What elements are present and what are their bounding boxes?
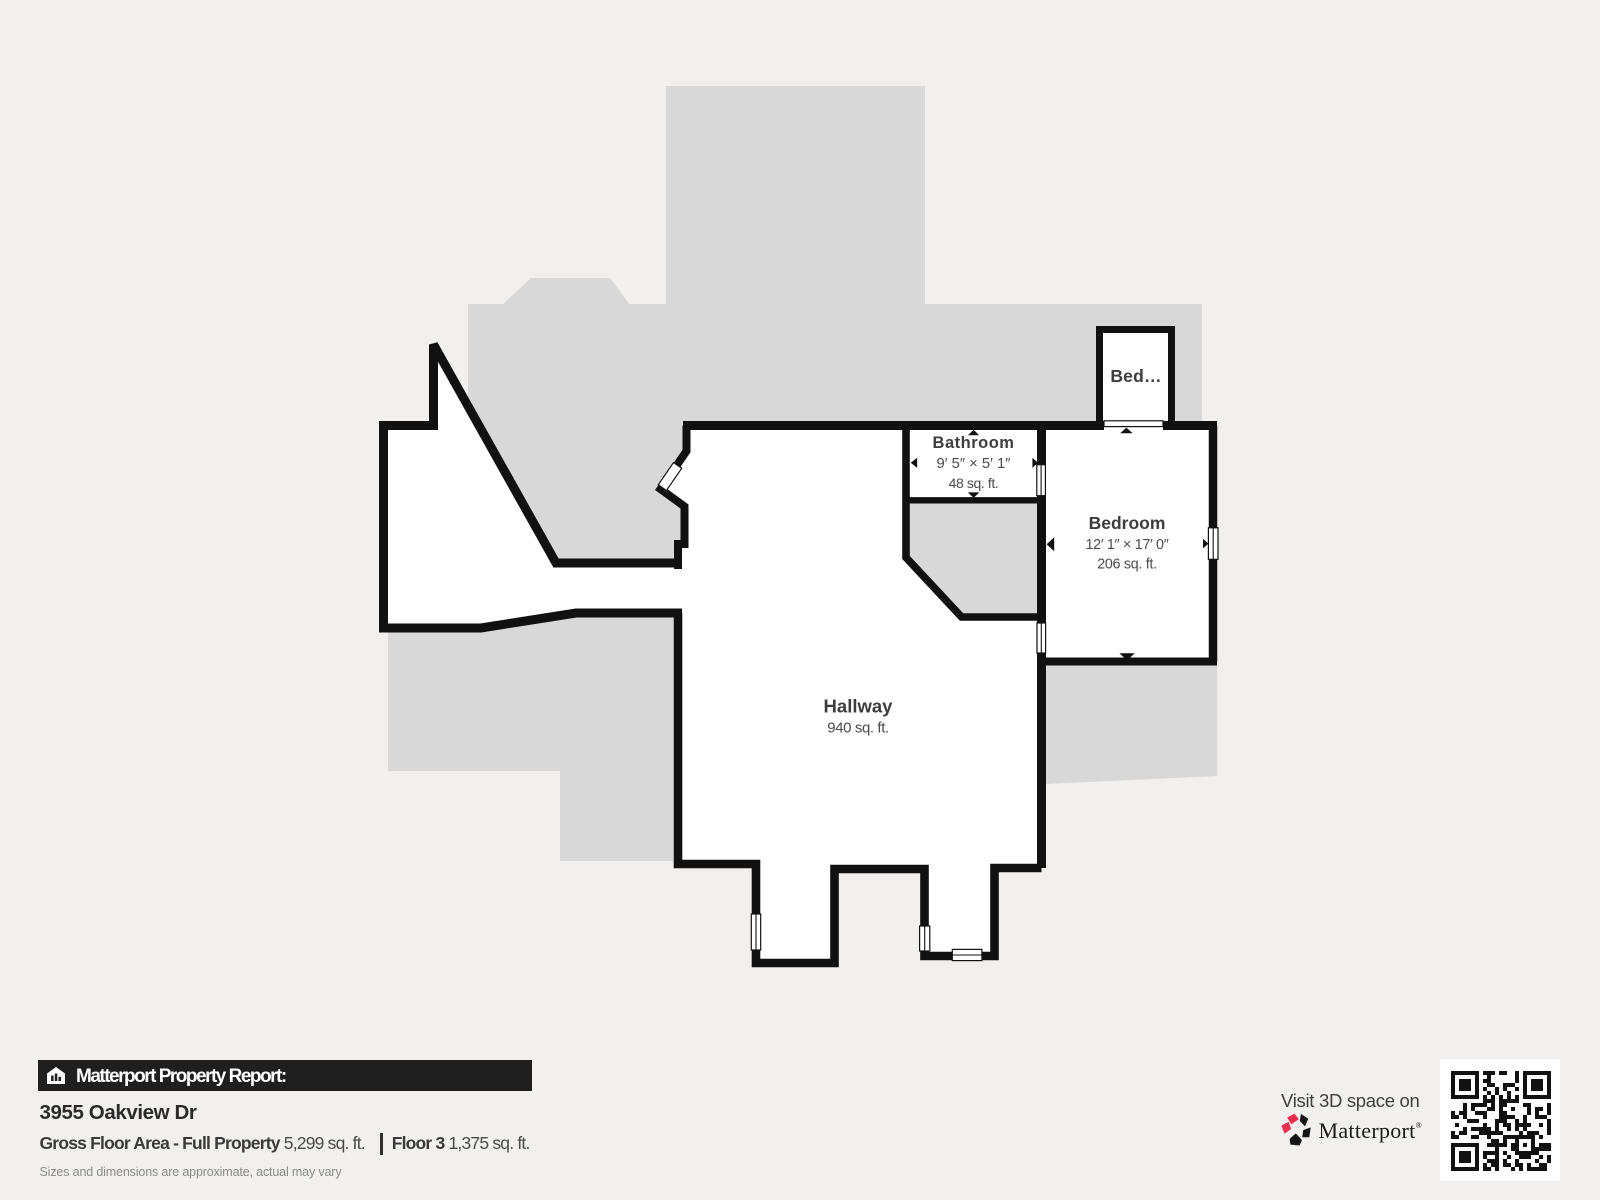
svg-text:Bedroom: Bedroom — [1089, 513, 1166, 533]
svg-text:12′ 1″ × 17′ 0″: 12′ 1″ × 17′ 0″ — [1086, 537, 1169, 553]
svg-text:Bathroom: Bathroom — [933, 434, 1015, 452]
svg-text:48 sq. ft.: 48 sq. ft. — [949, 475, 999, 491]
svg-text:Hallway: Hallway — [824, 696, 894, 717]
svg-text:940 sq. ft.: 940 sq. ft. — [827, 720, 888, 737]
svg-text:Bed…: Bed… — [1110, 366, 1161, 386]
svg-text:9′ 5″ × 5′ 1″: 9′ 5″ × 5′ 1″ — [936, 456, 1010, 472]
svg-text:206 sq. ft.: 206 sq. ft. — [1097, 557, 1157, 573]
